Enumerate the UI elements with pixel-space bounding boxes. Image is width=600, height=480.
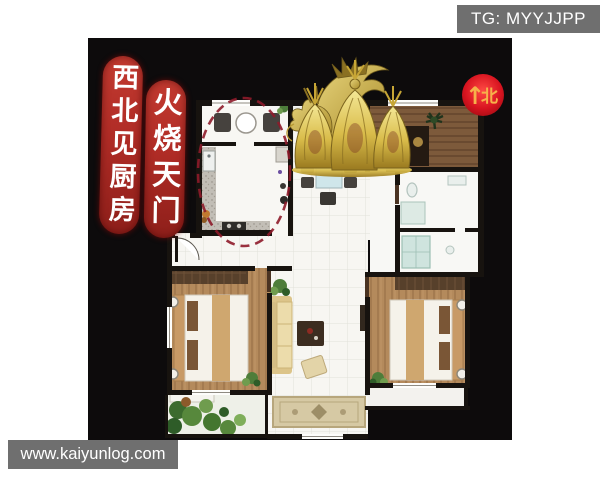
watermark-telegram-text: TG: MYYJJPP (471, 9, 586, 29)
watermark-website-text: www.kaiyunlog.com (21, 445, 166, 464)
feng-shui-floorplan-image: ↑ 北 西北见厨房 火烧天门 TG: MYYJJPP www.kaiyunlog… (0, 0, 600, 480)
golden-dragon-statue (280, 50, 425, 178)
compass-north-label: 北 (481, 87, 498, 107)
north-compass: ↑ 北 (461, 73, 505, 117)
callout-northwest-kitchen-text: 西北见厨房 (99, 62, 142, 228)
gold-ingot-sheaves (295, 60, 410, 170)
callout-northwest-kitchen: 西北见厨房 (99, 56, 144, 235)
watermark-website: www.kaiyunlog.com (8, 440, 178, 469)
callout-fire-heaven-gate-text: 火烧天门 (143, 87, 188, 232)
callout-fire-heaven-gate: 火烧天门 (144, 80, 187, 239)
watermark-telegram: TG: MYYJJPP (457, 5, 600, 33)
